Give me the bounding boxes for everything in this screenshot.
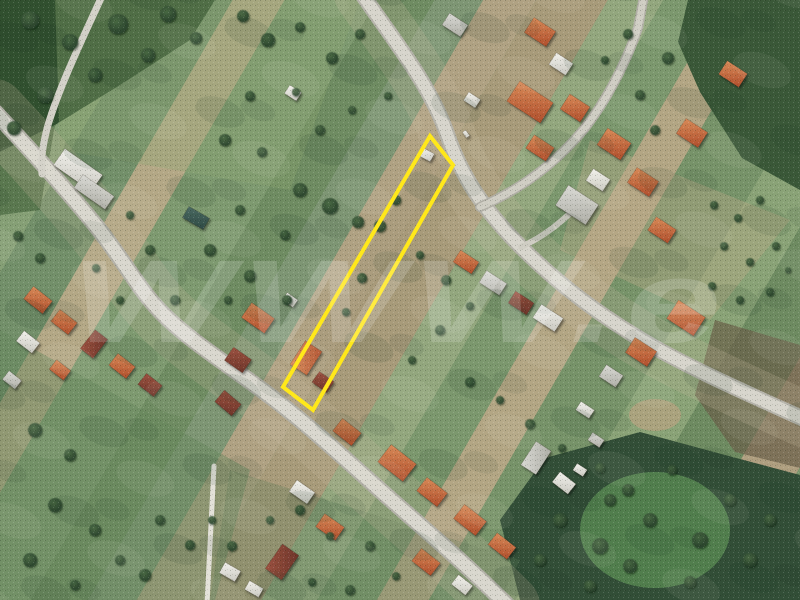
satellite-map: WWW.e	[0, 0, 800, 600]
satellite-image: WWW.e	[0, 0, 800, 600]
watermark-text: WWW.e	[70, 236, 730, 368]
